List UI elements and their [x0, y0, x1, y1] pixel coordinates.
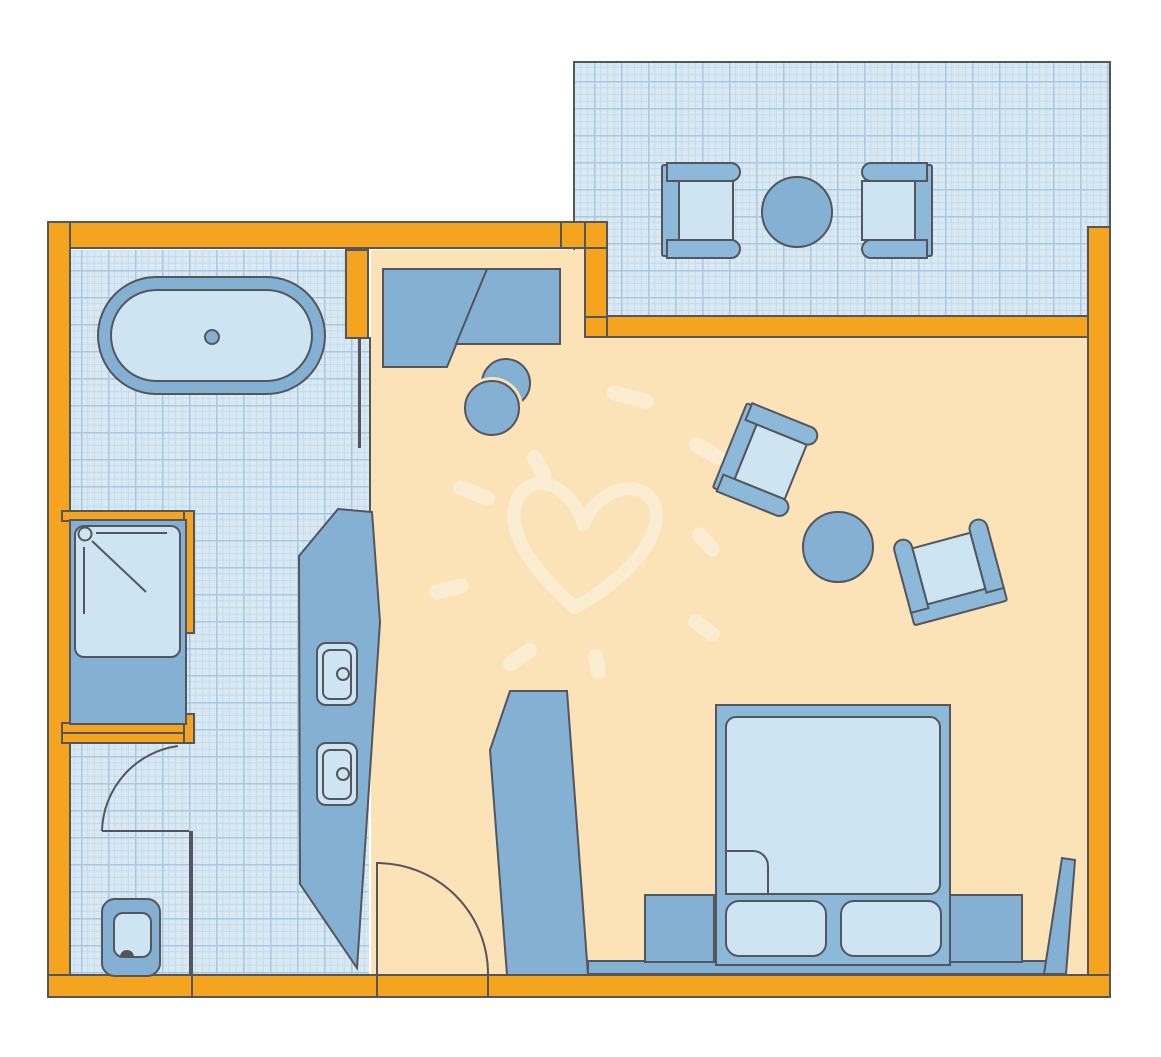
nightstand-right [950, 895, 1022, 962]
shower-tray [75, 526, 180, 657]
balcony-parapet-wall [585, 316, 1110, 337]
basin-drain [337, 768, 349, 780]
floor-plan-canvas [0, 0, 1161, 1057]
basin-drain [337, 668, 349, 680]
wc-partition-wall [189, 831, 193, 975]
wash-basin-1 [317, 643, 357, 705]
chair-armrest [862, 163, 927, 181]
double-bed [716, 705, 950, 965]
balcony-floor [574, 62, 1110, 336]
toilet-bowl [114, 913, 151, 957]
left-wall [48, 222, 70, 997]
desk-chair-seat [465, 381, 519, 435]
chair-seat [679, 181, 733, 240]
wash-basin-2 [317, 743, 357, 805]
bathroom-pillar [346, 250, 368, 338]
balcony-table [762, 177, 832, 247]
balcony-chair-left [662, 163, 740, 258]
sheet-fold-corner [726, 851, 768, 894]
bathtub-drain [205, 330, 219, 344]
balcony-furniture [662, 163, 932, 258]
side-table [803, 512, 873, 582]
glass-partition [358, 337, 361, 448]
nightstand-left [645, 895, 714, 962]
shower-head [79, 528, 92, 541]
pillow-right [841, 901, 941, 956]
floor-plan [0, 0, 1161, 1057]
chair-seat [862, 181, 915, 240]
chair-armrest [862, 240, 927, 258]
top-wall [48, 222, 607, 248]
chair-armrest [667, 163, 740, 181]
bottom-wall [48, 975, 1110, 997]
balcony-chair-right [862, 163, 932, 258]
pillow-left [726, 901, 826, 956]
balcony-door-pillar [585, 248, 607, 317]
chair-armrest [667, 240, 740, 258]
right-wall [1088, 227, 1110, 997]
